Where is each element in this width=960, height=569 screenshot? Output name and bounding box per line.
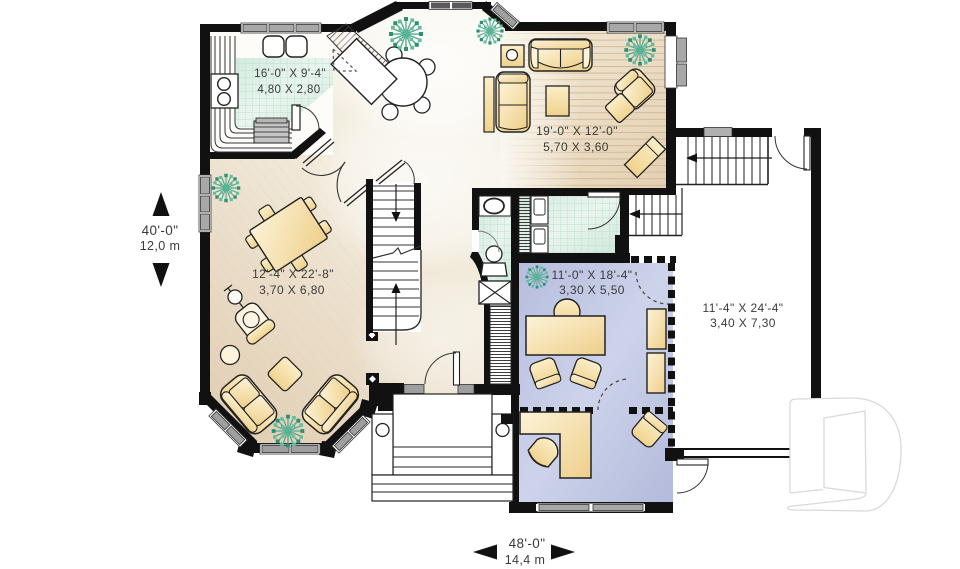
svg-text:16'-0" X 9'-4": 16'-0" X 9'-4" — [254, 68, 326, 80]
svg-text:12'-4" X 22'-8": 12'-4" X 22'-8" — [252, 267, 334, 281]
svg-text:3,30 X 5,50: 3,30 X 5,50 — [559, 283, 625, 297]
svg-text:19'-0" X 12'-0": 19'-0" X 12'-0" — [536, 124, 618, 138]
svg-text:3,40 X 7,30: 3,40 X 7,30 — [710, 316, 776, 330]
svg-text:5,70 X 3,60: 5,70 X 3,60 — [543, 140, 609, 154]
svg-text:48'-0": 48'-0" — [509, 536, 546, 551]
svg-text:4,80 X 2,80: 4,80 X 2,80 — [257, 84, 320, 96]
svg-text:11'-4" X 24'-4": 11'-4" X 24'-4" — [703, 301, 784, 315]
svg-text:14,4 m: 14,4 m — [505, 553, 546, 567]
svg-text:40'-0": 40'-0" — [142, 223, 179, 238]
svg-text:12,0 m: 12,0 m — [140, 239, 181, 253]
svg-text:11'-0" X 18'-4": 11'-0" X 18'-4" — [552, 268, 633, 282]
svg-text:3,70 X 6,80: 3,70 X 6,80 — [259, 283, 325, 297]
